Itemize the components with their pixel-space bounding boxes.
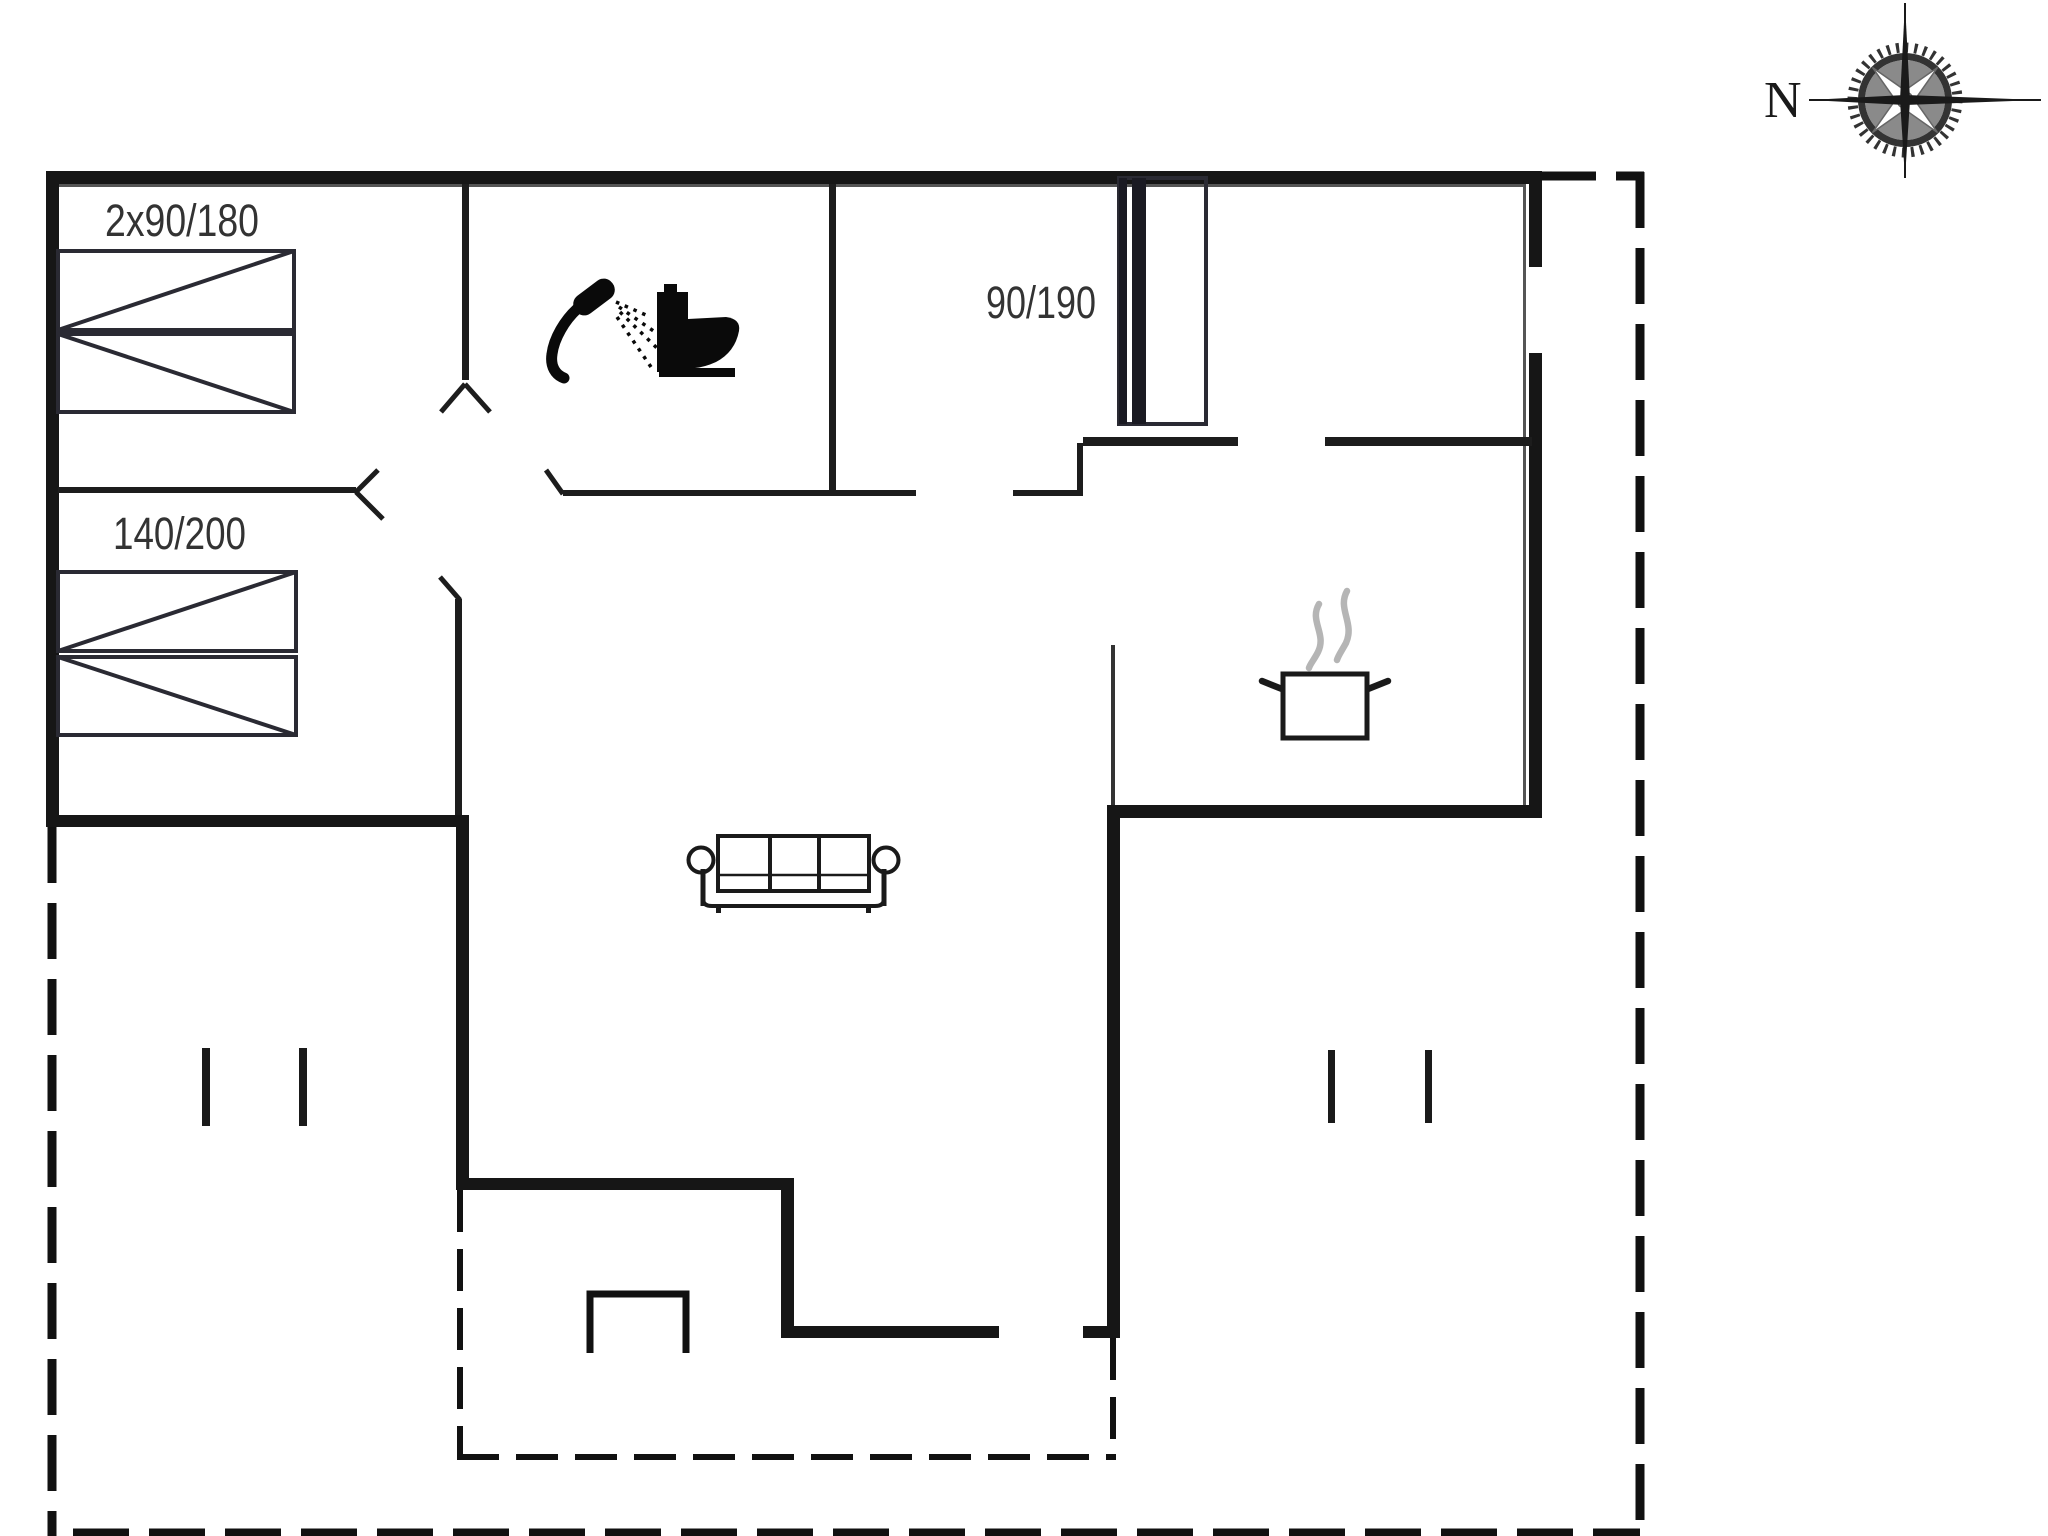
svg-text:2x90/180: 2x90/180 — [105, 195, 259, 246]
svg-text:140/200: 140/200 — [113, 508, 246, 559]
svg-text:N: N — [1764, 72, 1802, 129]
svg-text:90/190: 90/190 — [986, 277, 1096, 328]
